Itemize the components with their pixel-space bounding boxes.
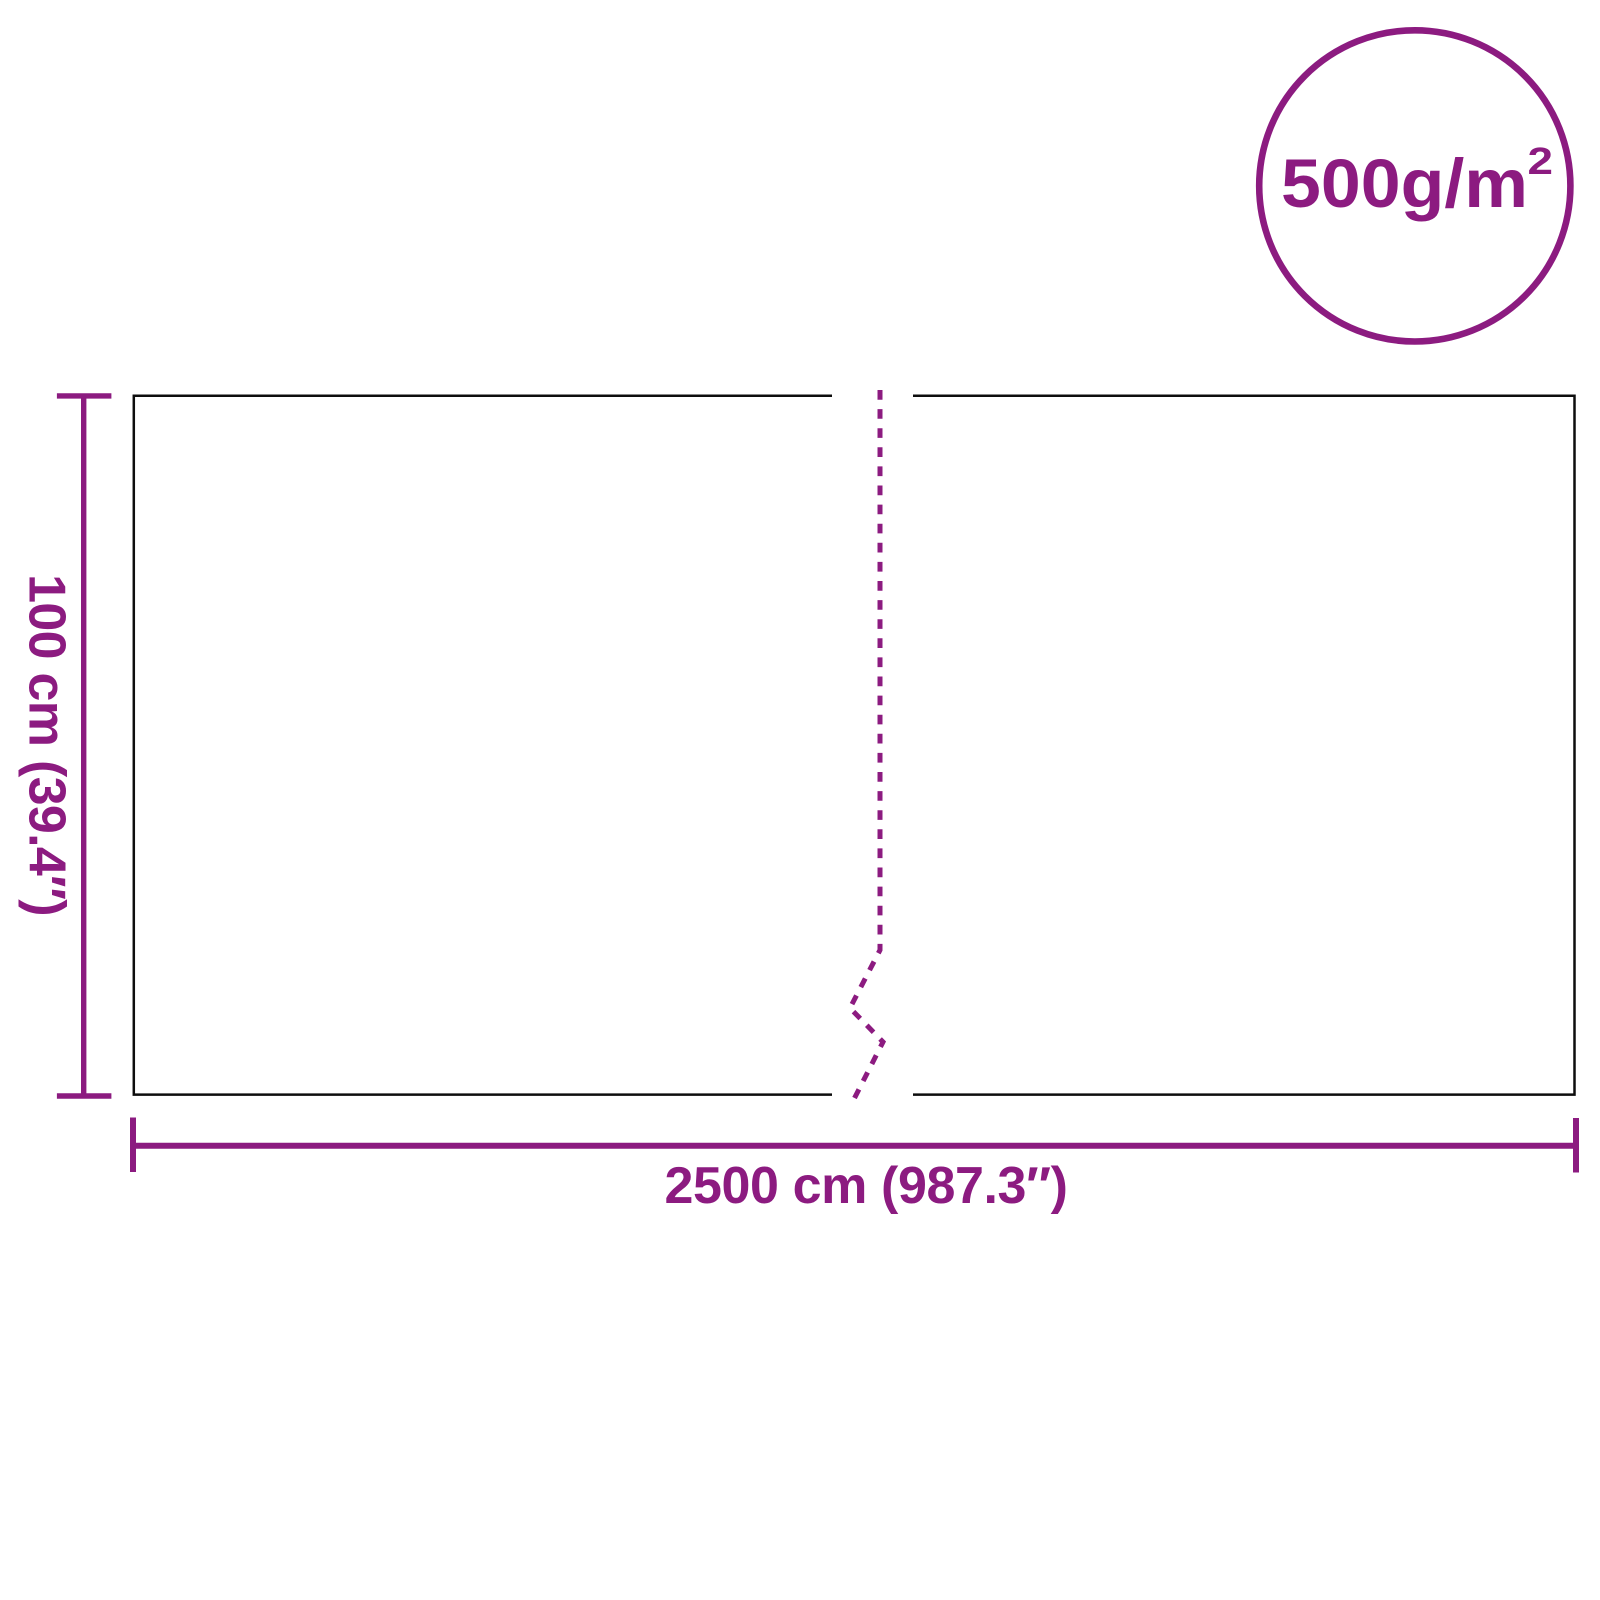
svg-text:100 cm (39.4″): 100 cm (39.4″) [18, 574, 76, 916]
svg-text:500g/m: 500g/m [1281, 145, 1528, 222]
svg-text:2: 2 [1528, 141, 1554, 183]
svg-text:2500 cm (987.3″): 2500 cm (987.3″) [665, 1157, 1068, 1215]
